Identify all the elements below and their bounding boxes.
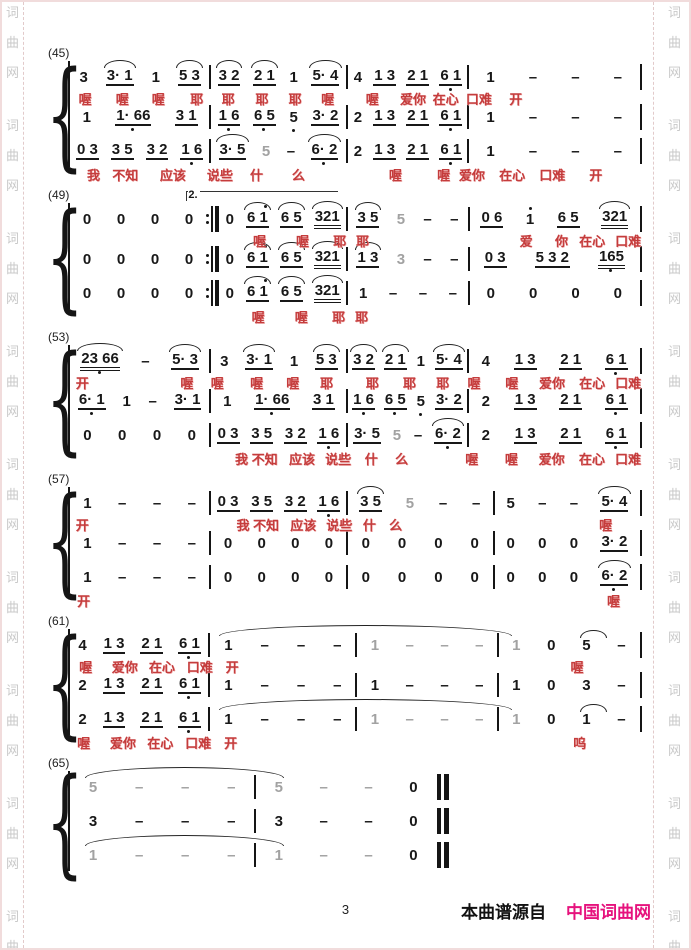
note-group: 3· 1	[106, 68, 134, 86]
note-group: 6· 2	[311, 142, 339, 160]
note-group: 321	[314, 209, 341, 229]
note-group: 1	[511, 638, 521, 653]
note-group: 6 5	[280, 210, 303, 228]
note-group: –	[318, 848, 328, 863]
note-group: –	[528, 144, 538, 159]
note-group: 3 5	[250, 494, 273, 512]
note-group: –	[152, 536, 162, 551]
measure: 11· 663 1	[211, 392, 345, 410]
watermark-char: 网	[6, 66, 19, 79]
note-group: 0	[184, 252, 194, 267]
note-group: 6 1	[178, 676, 201, 694]
watermark-char: 网	[668, 292, 681, 305]
note-group: 3· 1	[245, 352, 273, 370]
measure: 3 22 115· 4	[348, 352, 468, 370]
measure: 3––0	[256, 814, 436, 829]
octave-dot-low	[90, 412, 93, 415]
note-group: 0	[82, 212, 92, 227]
measure: 1 33––	[348, 250, 467, 268]
lyric: 喔	[571, 661, 584, 674]
measure: 101–	[499, 712, 639, 727]
watermark-char: 词	[6, 119, 19, 132]
measure: 3 22 115· 4	[211, 68, 345, 86]
measure: 0006· 2	[495, 568, 639, 586]
lyric: 口难	[187, 661, 213, 674]
end-barline	[640, 280, 642, 306]
note-group: 1 6	[317, 494, 340, 512]
octave-dot-low	[227, 128, 230, 131]
lyric: 在心	[579, 377, 605, 390]
note-group: 0	[290, 570, 300, 585]
note-group: 6 5	[280, 250, 303, 268]
note-group: 23 66	[80, 351, 120, 371]
note-group: 2 1	[406, 108, 429, 126]
note-group: 0	[433, 536, 443, 551]
watermark-char: 词	[668, 797, 681, 810]
watermark-char: 词	[6, 458, 19, 471]
note-group: –	[296, 712, 306, 727]
lyric: 喔	[152, 93, 165, 106]
note-group: 0	[223, 536, 233, 551]
lyric: 耶	[356, 235, 369, 248]
system-45: (45){33· 115 33 22 115· 441 32 16 11–––喔…	[68, 46, 642, 183]
measure: 21 32 16 1	[348, 108, 468, 126]
lyric: 什	[250, 169, 263, 182]
lyric: 喔	[116, 93, 129, 106]
end-barline	[640, 246, 642, 272]
note-group: 0	[537, 536, 547, 551]
lyric: 我	[235, 453, 248, 466]
lyric: 喔	[389, 169, 402, 182]
note-group: –	[471, 496, 481, 511]
note-group: –	[180, 780, 190, 795]
watermark-char: 曲	[668, 601, 681, 614]
note-group: 0	[569, 536, 579, 551]
note-group: –	[134, 780, 144, 795]
lyric: 爱你	[110, 737, 136, 750]
note-group: 1 3	[373, 142, 396, 160]
note-group: 0	[324, 536, 334, 551]
note-group: 6 1	[178, 710, 201, 728]
note-group: 3	[396, 252, 406, 267]
measure: 41 32 16 1	[348, 68, 468, 86]
measure-number-label: (61)	[48, 614, 642, 629]
note-group: 4	[77, 638, 87, 653]
lyrics-row-above: 喔爱你在心口难开喔	[70, 661, 642, 674]
note-group: –	[180, 848, 190, 863]
measure: 1–––	[70, 496, 209, 511]
note-group: –	[448, 286, 458, 301]
note-group: 0 3	[217, 426, 240, 444]
note-group: 2	[353, 144, 363, 159]
note-group: –	[439, 678, 449, 693]
octave-dot-low	[609, 269, 612, 272]
lyric: 耶	[436, 377, 449, 390]
watermark-char: 词	[6, 6, 19, 19]
note-group: 0	[537, 570, 547, 585]
stave-row: 21 32 16 11–––1–––101–	[70, 703, 642, 735]
note-group: 5 3	[178, 68, 201, 86]
lyric: 么	[292, 169, 305, 182]
watermark-right: 词曲网词曲网词曲网词曲网词曲网词曲网词曲网词曲网词曲网	[667, 6, 682, 948]
octave-dot-low	[270, 412, 273, 415]
lyric: 耶	[255, 93, 268, 106]
watermark-char: 曲	[668, 714, 681, 727]
note-group: 6 1	[605, 352, 628, 370]
octave-dot-low	[614, 412, 617, 415]
note-group: 3 2	[284, 426, 307, 444]
octave-dot-low	[614, 372, 617, 375]
note-group: 3· 5	[353, 426, 381, 444]
octave-dot-low	[190, 162, 193, 165]
watermark-char: 词	[6, 345, 19, 358]
watermark-char: 曲	[668, 262, 681, 275]
measure: 1–––	[348, 286, 467, 301]
note-group: 3 2	[218, 68, 241, 86]
watermark-char: 曲	[6, 149, 19, 162]
watermark-char: 曲	[6, 262, 19, 275]
note-group: 321	[601, 209, 628, 229]
note-group: 2	[77, 712, 87, 727]
measure: 1–––	[469, 110, 639, 125]
lyric: 什	[365, 453, 378, 466]
note-group: 0	[82, 428, 92, 443]
lyric: 开	[509, 93, 522, 106]
repeat-barline	[206, 206, 219, 232]
end-barline	[640, 64, 642, 90]
note-group: –	[363, 814, 373, 829]
watermark-char: 词	[668, 684, 681, 697]
lyric: 么	[389, 519, 402, 532]
note-group: 0	[257, 536, 267, 551]
watermark-char: 网	[668, 857, 681, 870]
note-group: 1 3	[514, 392, 537, 410]
octave-dot-low	[187, 656, 190, 659]
volta-bracket: 2.	[186, 191, 337, 201]
note-group: 3· 5	[219, 142, 247, 160]
lyric: 在心	[579, 235, 605, 248]
note-group: 1· 66	[254, 392, 290, 410]
lyric: 不知	[112, 169, 138, 182]
lyric: 我	[87, 169, 100, 182]
note-group: 6 1	[605, 392, 628, 410]
end-barline	[640, 348, 642, 374]
note-group: –	[418, 286, 428, 301]
lyric: 耶	[332, 311, 345, 324]
note-group: 0	[223, 570, 233, 585]
note-group: 0	[469, 570, 479, 585]
lyric: 在心	[579, 453, 605, 466]
note-group: 6 5	[253, 108, 276, 126]
note-group: 1	[121, 394, 131, 409]
note-group: 1 6	[218, 108, 241, 126]
stave-row: 5–––5––0	[70, 771, 449, 803]
note-group: 1 3	[103, 710, 126, 728]
lyric: 什	[363, 519, 376, 532]
note-group: 1 3	[373, 68, 396, 86]
note-group: 1 6	[180, 142, 203, 160]
note-group: 1	[88, 848, 98, 863]
measure: 1–––	[357, 638, 496, 653]
note-group: 0	[117, 428, 127, 443]
watermark-char: 词	[668, 458, 681, 471]
note-group: 3 5	[250, 426, 273, 444]
lyric: 在心	[499, 169, 525, 182]
measure: 41 32 16 1	[469, 352, 639, 370]
note-group: –	[569, 496, 579, 511]
note-group: 5	[396, 212, 406, 227]
measure: 21 32 16 1	[70, 676, 208, 694]
lyric: 开	[224, 737, 237, 750]
octave-dot-low	[362, 412, 365, 415]
watermark-char: 网	[668, 518, 681, 531]
watermark-char: 词	[668, 6, 681, 19]
measure-number-label: (45)	[48, 46, 642, 61]
note-group: 0	[116, 252, 126, 267]
stave-row: 1–––0 33 53 21 63 55––5––5· 4	[70, 487, 642, 519]
watermark-char: 曲	[6, 488, 19, 501]
note-group: 1	[485, 110, 495, 125]
octave-dot-low	[449, 162, 452, 165]
note-group: 2	[481, 394, 491, 409]
note-group: –	[332, 712, 342, 727]
lyric: 口难	[615, 235, 641, 248]
lyric: 说些	[207, 169, 233, 182]
note-group: 5	[261, 144, 271, 159]
measure: 06 16 5321	[219, 209, 346, 229]
lyric: 喔	[180, 377, 193, 390]
note-group: –	[117, 570, 127, 585]
end-barline	[640, 422, 642, 448]
note-group: 1	[82, 536, 92, 551]
lyric: 耶	[289, 93, 302, 106]
note-group: 6 1	[439, 142, 462, 160]
lyric: 耶	[355, 311, 368, 324]
measure: 105–	[499, 638, 639, 653]
note-group: 2	[481, 428, 491, 443]
watermark-char: 网	[6, 179, 19, 192]
octave-dot-low	[449, 88, 452, 91]
note-group: 0	[150, 252, 160, 267]
watermark-char: 网	[6, 292, 19, 305]
stave-row: 3–––3––0	[70, 805, 449, 837]
note-group: 6 1	[439, 108, 462, 126]
stave-row: 41 32 16 11–––1–––105–	[70, 629, 642, 661]
watermark-char: 网	[6, 631, 19, 644]
watermark-char: 网	[668, 744, 681, 757]
lyric: 开	[226, 661, 239, 674]
measure: 1–––	[70, 536, 209, 551]
note-group: 3· 2	[600, 534, 628, 552]
lyrics-row-above: 喔喔耶耶爱你在心口难	[70, 235, 642, 248]
note-group: 0	[184, 212, 194, 227]
lyric: 喔	[599, 519, 612, 532]
note-group: 0	[528, 286, 538, 301]
note-group: 5	[392, 428, 402, 443]
note-group: 0	[257, 570, 267, 585]
note-group: –	[187, 496, 197, 511]
system-body: {23 66–5· 333· 115 33 22 115· 441 32 16 …	[68, 345, 642, 451]
measure: 0 33 53 21 6	[211, 426, 345, 444]
note-group: 1	[82, 496, 92, 511]
note-group: 1	[485, 144, 495, 159]
stave-row: 1–––1––0	[70, 839, 449, 871]
measure: 1–––	[210, 638, 355, 653]
note-group: –	[537, 496, 547, 511]
lyrics-row-below: 我不知应该说些什么喔喔爱你在心口难	[68, 453, 642, 467]
note-group: 6· 2	[600, 568, 628, 586]
watermark-char: 网	[6, 857, 19, 870]
octave-dot-low	[262, 128, 265, 131]
note-group: 1	[370, 712, 380, 727]
measure: 0000	[348, 536, 493, 551]
measure: 103–	[499, 678, 639, 693]
note-group: 1	[289, 354, 299, 369]
note-group: –	[260, 638, 270, 653]
note-group: 2 1	[559, 352, 582, 370]
note-group: 3· 2	[435, 392, 463, 410]
lyric: 爱你	[112, 661, 138, 674]
measure: 21 32 16 1	[348, 142, 468, 160]
watermark-char: 曲	[6, 940, 19, 948]
lyric: 么	[395, 453, 408, 466]
note-group: –	[570, 144, 580, 159]
note-group: 1	[485, 70, 495, 85]
note-group: 0 3	[76, 142, 99, 160]
lyric: 呜	[573, 737, 586, 750]
note-group: 1	[82, 110, 92, 125]
note-group: 5	[88, 780, 98, 795]
note-group: –	[449, 252, 459, 267]
repeat-barline	[206, 246, 219, 272]
watermark-char: 词	[6, 571, 19, 584]
note-group: 3 2	[352, 352, 375, 370]
note-group: 6· 1	[78, 392, 106, 410]
watermark-char: 网	[668, 179, 681, 192]
measure: 0000	[70, 428, 209, 443]
octave-dot-low	[292, 129, 295, 132]
volta-label: 2.	[188, 190, 199, 201]
measure: 1–––	[70, 848, 254, 863]
note-group: 1	[223, 712, 233, 727]
note-group: –	[613, 110, 623, 125]
source-site-link[interactable]: 中国词曲网	[566, 902, 651, 924]
note-group: 1 3	[103, 676, 126, 694]
measure: 0000	[70, 212, 206, 227]
note-group: 3	[274, 814, 284, 829]
lyric: 喔	[79, 93, 92, 106]
watermark-char: 曲	[6, 827, 19, 840]
lyric: 在心	[433, 93, 459, 106]
measure: 11· 663 1	[70, 108, 209, 126]
note-group: –	[613, 144, 623, 159]
lyric: 说些	[325, 453, 351, 466]
note-group: 0	[505, 570, 515, 585]
end-barline	[640, 138, 642, 164]
note-group: 6 5	[557, 210, 580, 228]
lyric: 爱	[520, 235, 533, 248]
note-group: –	[528, 110, 538, 125]
note-group: 4	[481, 354, 491, 369]
lyric: 喔	[250, 377, 263, 390]
note-group: –	[474, 638, 484, 653]
note-group: –	[388, 286, 398, 301]
note-group: 1 3	[514, 352, 537, 370]
note-group: 5	[274, 780, 284, 795]
measure-number-label: (57)	[48, 472, 642, 487]
note-group: –	[332, 638, 342, 653]
note-group: 3· 2	[311, 108, 339, 126]
note-group: –	[296, 638, 306, 653]
lyric: 我	[236, 519, 249, 532]
watermark-dashed-line-left	[23, 2, 24, 948]
stave-row: 00000 33 53 21 63· 55–6· 221 32 16 1	[70, 419, 642, 451]
lyric: 不知	[253, 519, 279, 532]
note-group: 5	[505, 496, 515, 511]
end-barline	[437, 842, 449, 868]
lyric: 开	[76, 377, 89, 390]
lyric: 喔	[253, 235, 266, 248]
note-group: –	[226, 814, 236, 829]
lyric: 喔	[505, 377, 518, 390]
end-barline	[640, 632, 642, 658]
watermark-char: 词	[668, 119, 681, 132]
measure: 5––0	[256, 780, 436, 795]
lyric: 喔	[211, 377, 224, 390]
measure-number-label: (65)	[48, 756, 642, 771]
note-group: –	[134, 848, 144, 863]
measure: 0 616 5321	[470, 209, 639, 229]
page-footer: 3 本曲谱源自 中国词曲网	[2, 902, 689, 924]
measure: 1–––	[469, 70, 639, 85]
note-group: –	[117, 496, 127, 511]
note-group: 2 1	[406, 142, 429, 160]
lyric: 口难	[615, 453, 641, 466]
note-group: 0	[361, 570, 371, 585]
note-group: –	[226, 848, 236, 863]
note-group: 6 1	[605, 426, 628, 444]
octave-dot-low	[322, 162, 325, 165]
note-group: 3 2	[284, 494, 307, 512]
note-group: 3 1	[175, 108, 198, 126]
note-group: 0	[82, 286, 92, 301]
note-group: 5 3 2	[535, 250, 570, 268]
measure: 3· 55–6· 2	[348, 426, 468, 444]
measure: 3 55––	[348, 210, 467, 228]
note-group: –	[318, 780, 328, 795]
stave-row: 000006 16 53213 55––0 616 5321	[70, 203, 642, 235]
measure: 41 32 16 1	[70, 636, 208, 654]
stave-row: 1–––000000000006· 2	[70, 561, 642, 593]
note-group: –	[474, 678, 484, 693]
note-group: 1· 66	[115, 108, 151, 126]
lyric: 说些	[326, 519, 352, 532]
note-group: 1	[581, 712, 591, 727]
lyric: 喔	[465, 453, 478, 466]
measure: 21 32 16 1	[70, 710, 208, 728]
note-group: 3 5	[359, 494, 382, 512]
note-group: –	[616, 638, 626, 653]
lyric: 口难	[615, 377, 641, 390]
note-group: 3 2	[146, 142, 169, 160]
measure: 1–––	[210, 712, 355, 727]
measure: 21 32 16 1	[469, 426, 639, 444]
note-group: –	[187, 536, 197, 551]
note-group: 1	[222, 394, 232, 409]
note-group: 2 1	[559, 392, 582, 410]
note-group: 0	[408, 848, 418, 863]
lyric: 耶	[403, 377, 416, 390]
